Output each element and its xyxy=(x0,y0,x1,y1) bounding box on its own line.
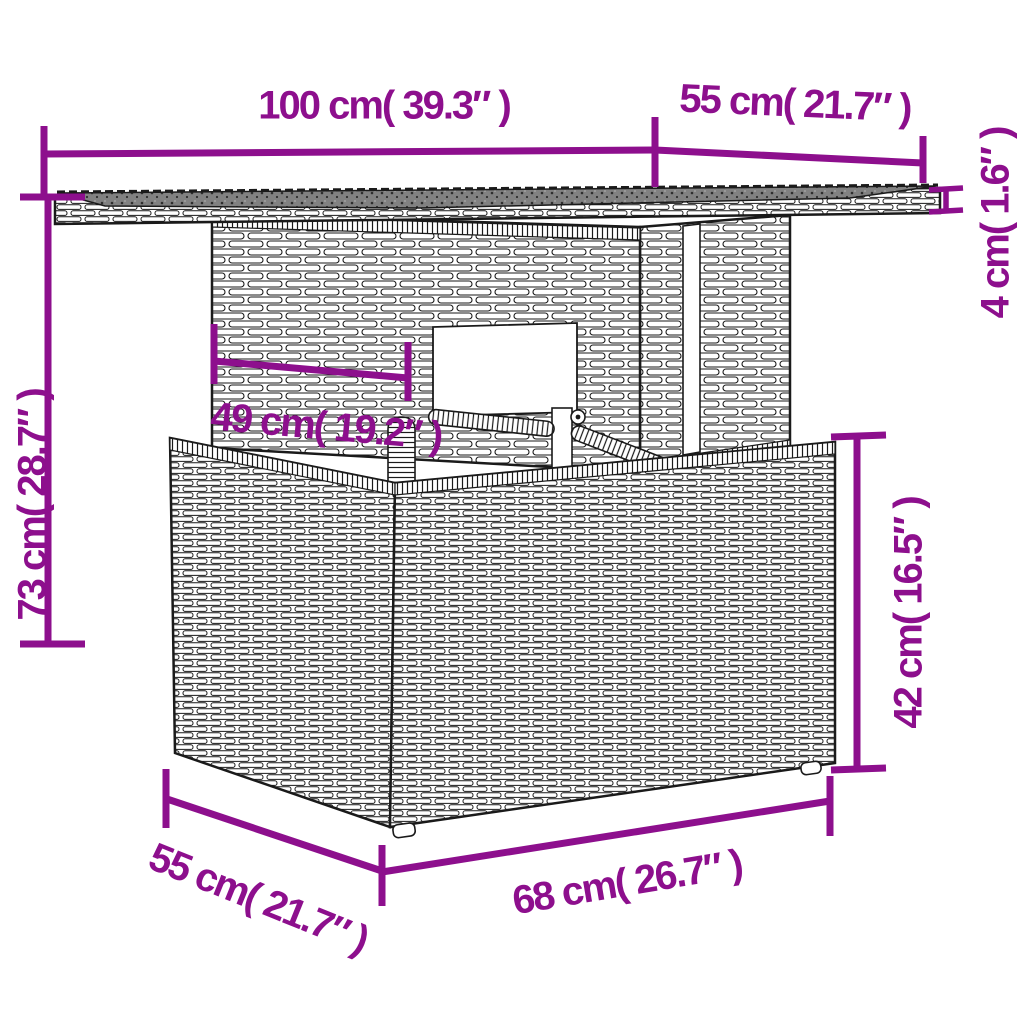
label-tabletop-thickness: 4 cm( 1.6″ ) xyxy=(974,128,1019,319)
foot-front-corner xyxy=(392,822,416,838)
label-total-height: 73 cm( 28.7″ ) xyxy=(11,389,56,620)
dim-base-height xyxy=(831,435,886,770)
foot-right xyxy=(800,761,821,776)
pedestal-window-opening xyxy=(433,323,577,416)
tabletop xyxy=(55,185,940,224)
pedestal-slat xyxy=(683,224,700,455)
label-base-height: 42 cm( 16.5″ ) xyxy=(887,497,932,728)
label-top-width: 100 cm( 39.3″ ) xyxy=(258,84,510,129)
dim-top-depth xyxy=(655,136,923,183)
product-dimension-diagram: 100 cm( 39.3″ ) 55 cm( 21.7″ ) 4 cm( 1.6… xyxy=(0,0,1024,1024)
base-box xyxy=(170,438,835,838)
